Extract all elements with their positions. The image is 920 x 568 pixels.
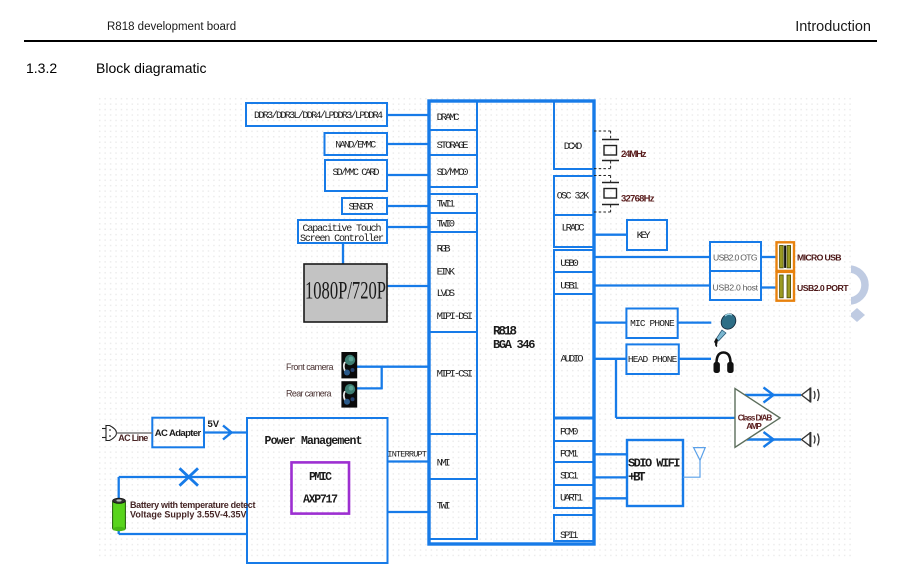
svg-text:+BT: +BT (628, 470, 646, 484)
svg-text:SDC1: SDC1 (560, 471, 579, 483)
svg-text:AC Adapter: AC Adapter (155, 428, 202, 439)
svg-text:MICRO USB: MICRO USB (797, 253, 842, 263)
svg-text:PMIC: PMIC (309, 471, 332, 484)
svg-text:AMP: AMP (746, 421, 762, 431)
svg-text:SENSOR: SENSOR (349, 202, 374, 213)
svg-text:DRAMC: DRAMC (437, 112, 460, 124)
svg-text:SD/MMC0: SD/MMC0 (437, 167, 469, 179)
svg-text:EINK: EINK (437, 266, 456, 278)
svg-text:SD/MMC CARD: SD/MMC CARD (333, 167, 380, 179)
svg-text:MIPI-DSI: MIPI-DSI (437, 311, 474, 323)
svg-text:AUDIO: AUDIO (561, 354, 584, 366)
svg-text:INTERRUPT: INTERRUPT (387, 450, 427, 460)
svg-text:UART1: UART1 (560, 493, 583, 505)
svg-text:RGB: RGB (437, 244, 451, 256)
svg-text:TWI0: TWI0 (437, 218, 456, 230)
svg-text:DDR3/DDR3L/DDR4/LPDDR3/LPDDR4: DDR3/DDR3L/DDR4/LPDDR3/LPDDR4 (254, 110, 383, 122)
svg-text:Battery with temperature detec: Battery with temperature detect (130, 500, 256, 510)
svg-text:SPI1: SPI1 (560, 530, 579, 542)
svg-text:USB2.0 OTG: USB2.0 OTG (713, 252, 758, 262)
svg-text:BGA 346: BGA 346 (493, 338, 536, 352)
svg-text:NAND/EMMC: NAND/EMMC (335, 139, 376, 151)
svg-text:DCXO: DCXO (564, 141, 583, 153)
svg-text:TWI: TWI (437, 500, 451, 512)
svg-text:HEAD PHONE: HEAD PHONE (628, 354, 678, 365)
svg-text:Front camera: Front camera (286, 362, 334, 372)
svg-text:MIPI-CSI: MIPI-CSI (437, 368, 474, 380)
svg-text:AXP717: AXP717 (303, 494, 338, 507)
svg-text:LRADC: LRADC (562, 222, 585, 234)
svg-text:24MHz: 24MHz (621, 149, 647, 160)
svg-text:AC Line: AC Line (118, 433, 148, 443)
svg-text:PCM1: PCM1 (560, 449, 579, 461)
svg-text:MIC PHONE: MIC PHONE (630, 318, 675, 329)
svg-text:Screen Controller: Screen Controller (300, 233, 384, 245)
svg-text:5V: 5V (208, 419, 220, 430)
svg-text:USB2.0 host: USB2.0 host (713, 283, 759, 293)
svg-text:R818: R818 (493, 325, 517, 339)
svg-text:KEY: KEY (637, 230, 652, 242)
svg-text:USB1: USB1 (560, 280, 579, 292)
svg-text:32768Hz: 32768Hz (621, 193, 655, 204)
svg-text:USB2.0 PORT: USB2.0 PORT (797, 283, 849, 293)
svg-text:NMI: NMI (437, 457, 451, 469)
svg-text:Voltage Supply 3.55V-4.35V: Voltage Supply 3.55V-4.35V (130, 510, 247, 520)
svg-text:Rear camera: Rear camera (286, 389, 332, 399)
svg-text:USB0: USB0 (560, 258, 579, 270)
svg-text:OSC 32K: OSC 32K (557, 191, 590, 202)
svg-text:Power Management: Power Management (265, 435, 363, 448)
svg-text:1080P/720P: 1080P/720P (305, 278, 386, 305)
svg-text:LVDS: LVDS (437, 288, 456, 300)
svg-text:PCM0: PCM0 (560, 427, 579, 439)
svg-text:STORAGE: STORAGE (437, 140, 469, 152)
svg-text:TWI1: TWI1 (437, 198, 456, 210)
svg-text:SDIO WIFI: SDIO WIFI (628, 457, 681, 471)
